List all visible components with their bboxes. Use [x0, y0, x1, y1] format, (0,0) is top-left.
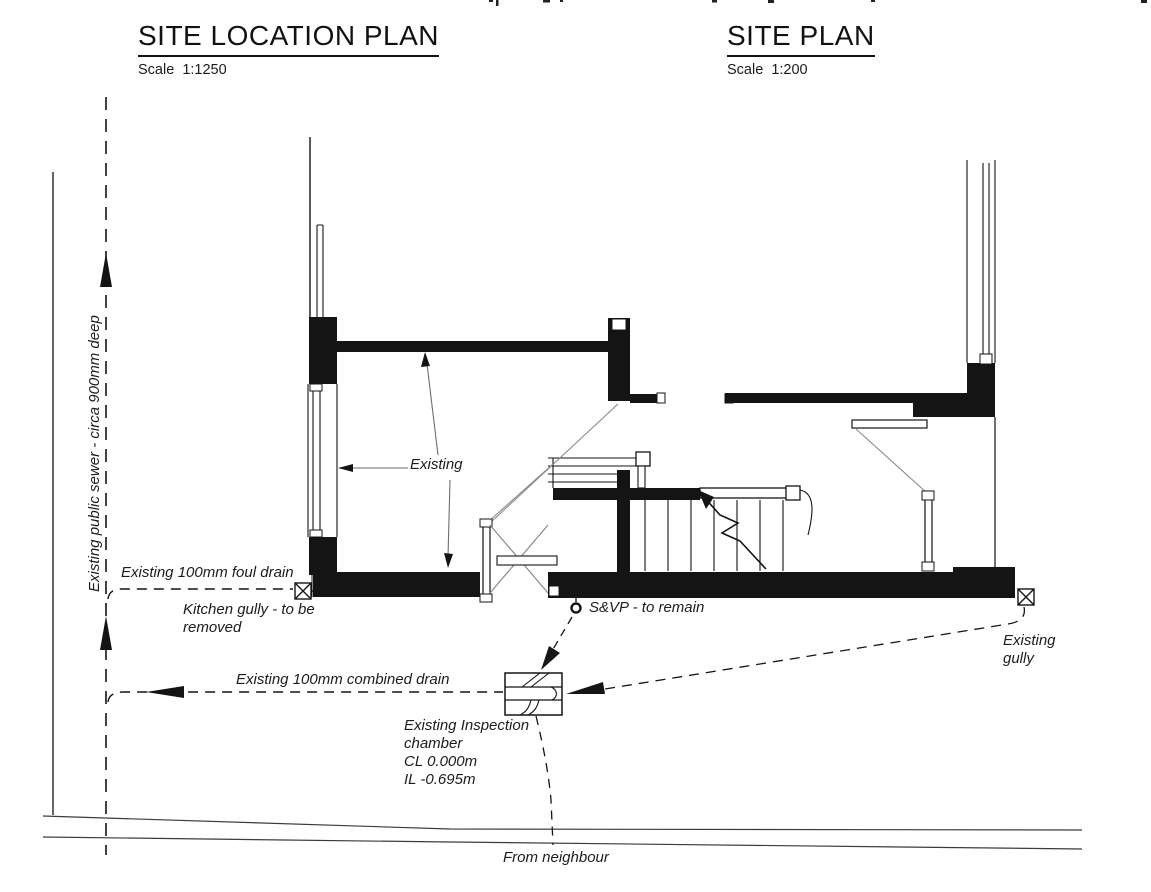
wall-stair-vertical: [617, 470, 630, 572]
wall-top: [337, 341, 620, 352]
road-lines: [43, 816, 1082, 849]
drawing-sheet: SITE LOCATION PLAN Scale 1:1250 SITE PLA…: [0, 0, 1151, 892]
wall-right: [725, 393, 967, 403]
kitchen-gully-symbol: [295, 583, 316, 599]
label-kitchen-gully-line2: removed: [183, 619, 241, 637]
door-jamb: [549, 586, 559, 596]
wall-stair-horizontal: [553, 488, 700, 500]
handrail: [700, 488, 788, 498]
handrail-curve: [800, 490, 812, 535]
label-existing-gully: Existing: [1003, 632, 1056, 650]
site-location-plan-scale: Scale 1:1250: [138, 62, 227, 78]
wall-pier: [309, 537, 337, 575]
wall-corner-block: [967, 363, 995, 417]
label-inspection-chamber: Existing Inspection: [404, 717, 529, 735]
label-inspection-chamber-line2: chamber: [404, 735, 462, 753]
existing-gully-symbol: [1018, 589, 1034, 605]
door-swing-line: [490, 404, 618, 523]
gully-to-chamber-line: [566, 607, 1024, 694]
wall-stub: [630, 394, 658, 403]
svp-to-chamber-line: [541, 617, 572, 670]
drawing-svg: [0, 0, 1151, 892]
label-chamber-invert-level: IL -0.695m: [404, 771, 475, 789]
step-bar: [497, 556, 557, 565]
stair-direction-line: [698, 490, 766, 569]
wall-notch: [612, 319, 626, 330]
newel-post: [786, 486, 800, 500]
site-plan-title: SITE PLAN: [727, 20, 875, 57]
drain-flow-arrow-icon: [566, 682, 605, 694]
door-swing-line: [488, 464, 553, 522]
inspection-chamber-symbol: [505, 673, 562, 715]
leader-arrow-icon: [444, 553, 453, 568]
svp-symbol: [572, 598, 581, 613]
door-swing-line: [856, 429, 927, 493]
label-kitchen-gully: Kitchen gully - to be: [183, 601, 315, 619]
foul-drain-line: [108, 589, 293, 599]
label-public-sewer: Existing public sewer - circa 900mm deep: [86, 315, 104, 592]
window-right-bay: [967, 160, 995, 364]
label-existing-gully-line2: gully: [1003, 650, 1034, 668]
label-chamber-cover-level: CL 0.000m: [404, 753, 477, 771]
label-foul-drain: Existing 100mm foul drain: [121, 564, 294, 582]
wall-bottom-right-step: [953, 567, 1015, 598]
sewer-flow-arrow-icon: [100, 253, 112, 287]
leader-arrow-icon: [338, 464, 353, 472]
site-location-plan-title: SITE LOCATION PLAN: [138, 20, 439, 57]
stair-treads: [645, 500, 783, 571]
window-left: [308, 384, 337, 537]
chamber-to-neighbour-line: [536, 716, 553, 845]
label-combined-drain: Existing 100mm combined drain: [236, 671, 449, 689]
drain-flow-arrow-icon: [146, 686, 184, 698]
balustrade: [638, 466, 645, 488]
wall-bottom-main: [548, 572, 1015, 598]
label-existing: Existing: [410, 456, 463, 474]
door-jamb: [657, 393, 665, 403]
wall-pier: [309, 317, 337, 384]
site-plan-scale: Scale 1:200: [727, 62, 808, 78]
leader-arrow-icon: [421, 352, 430, 367]
cropped-text-fragments: [489, 0, 1147, 6]
building-plan: [308, 137, 1015, 602]
label-from-neighbour: From neighbour: [503, 849, 609, 867]
newel-post: [636, 452, 650, 466]
window-upper-left: [317, 225, 323, 317]
sewer-flow-arrow-icon: [100, 616, 112, 650]
staircase: [636, 452, 812, 571]
label-svp: S&VP - to remain: [589, 599, 704, 617]
drain-flow-arrow-icon: [541, 646, 560, 670]
wall-bottom-left: [313, 572, 480, 597]
door-right: [852, 420, 934, 571]
